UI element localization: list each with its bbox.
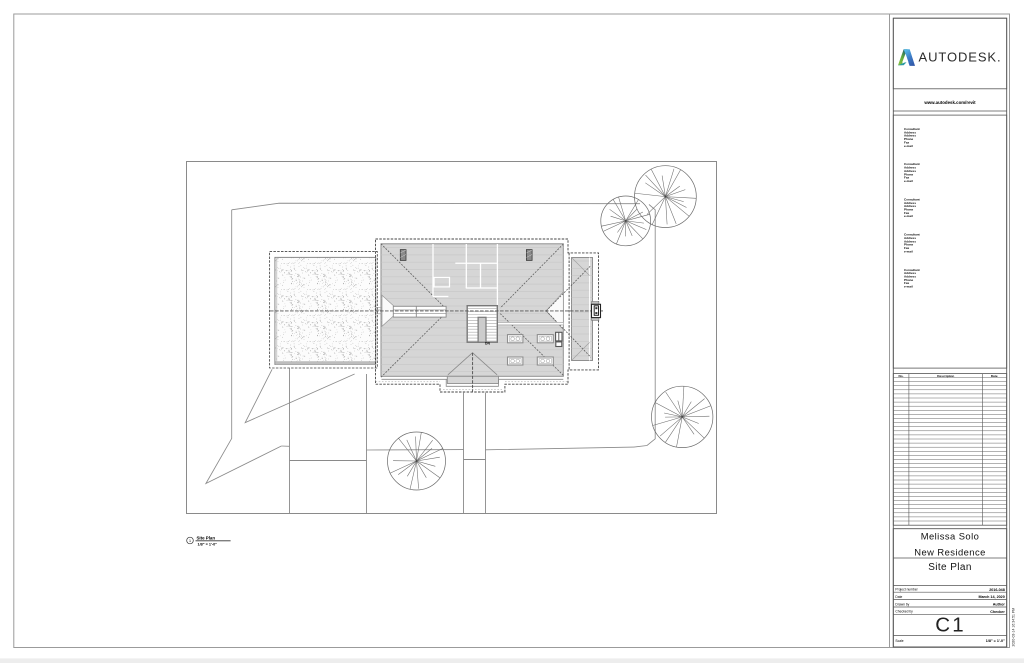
svg-text:Date: Date — [991, 374, 998, 378]
svg-text:1/8" = 1'-0": 1/8" = 1'-0" — [986, 639, 1005, 643]
svg-text:2020-03-14 16:34:51 PM: 2020-03-14 16:34:51 PM — [1012, 608, 1016, 647]
svg-text:Drawn by: Drawn by — [895, 602, 909, 606]
svg-text:e-mail: e-mail — [904, 285, 913, 289]
svg-text:Project number: Project number — [895, 588, 918, 592]
svg-text:Author: Author — [993, 603, 1006, 607]
svg-text:2016-048: 2016-048 — [989, 588, 1005, 592]
svg-text:Site Plan: Site Plan — [197, 535, 216, 540]
svg-text:1: 1 — [189, 539, 191, 543]
svg-text:DN: DN — [485, 341, 490, 345]
svg-text:Scale: Scale — [895, 639, 903, 643]
svg-text:www.autodesk.com/revit: www.autodesk.com/revit — [923, 100, 976, 105]
svg-text:C1: C1 — [935, 614, 966, 637]
svg-text:Checked by: Checked by — [895, 610, 913, 614]
svg-text:e-mail: e-mail — [904, 179, 913, 183]
svg-text:No.: No. — [899, 374, 904, 378]
svg-text:Description: Description — [937, 374, 954, 378]
svg-text:e-mail: e-mail — [904, 249, 913, 253]
svg-text:Melissa Solo: Melissa Solo — [921, 531, 980, 542]
svg-text:1/8" = 1'-0": 1/8" = 1'-0" — [198, 543, 218, 547]
svg-text:Checker: Checker — [990, 610, 1005, 614]
svg-text:AUTODESK.: AUTODESK. — [919, 49, 1002, 64]
svg-text:March 14, 2020: March 14, 2020 — [979, 595, 1005, 599]
svg-text:e-mail: e-mail — [904, 214, 913, 218]
svg-text:Date: Date — [895, 595, 902, 599]
svg-text:New Residence: New Residence — [914, 547, 986, 558]
svg-text:Site Plan: Site Plan — [928, 562, 972, 573]
svg-text:e-mail: e-mail — [904, 144, 913, 148]
